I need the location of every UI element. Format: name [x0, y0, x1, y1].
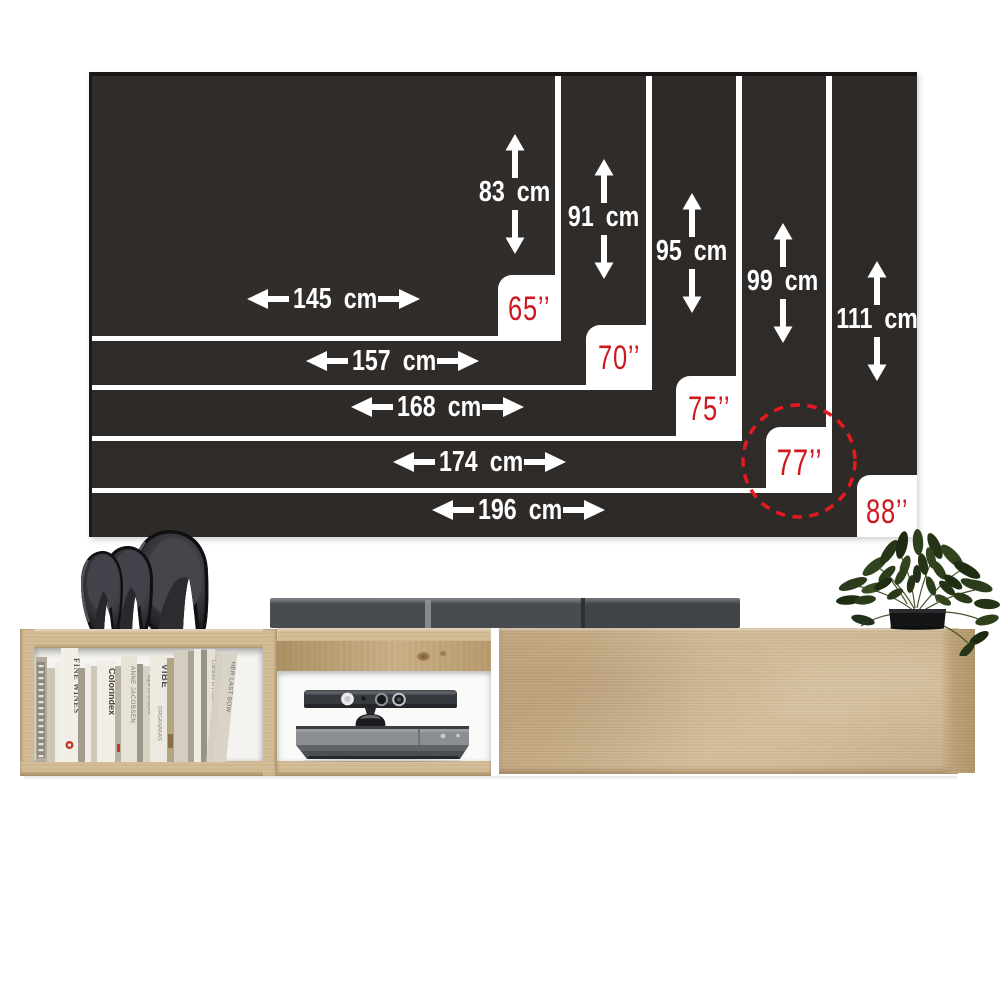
svg-text:ANNE JACOBSEN: ANNE JACOBSEN [129, 666, 135, 723]
svg-text:ORGANAKAS: ORGANAKAS [156, 706, 162, 741]
